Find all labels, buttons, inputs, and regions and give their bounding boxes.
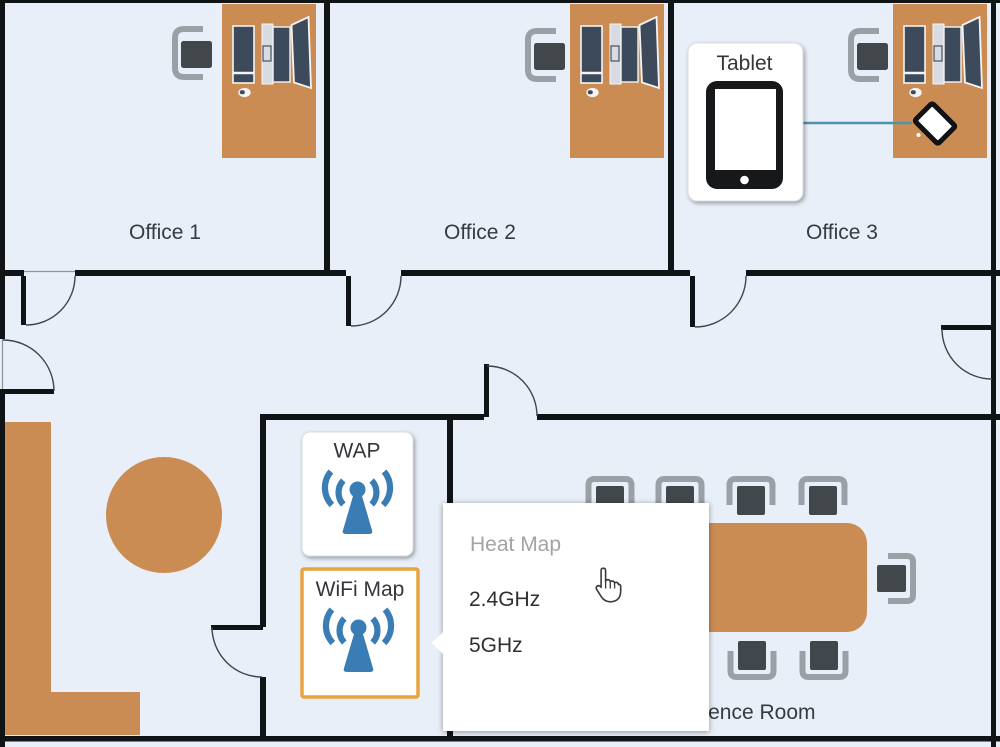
svg-text:Office 3: Office 3 [806,221,878,244]
svg-text:5GHz: 5GHz [469,634,523,657]
svg-text:Tablet: Tablet [716,52,772,75]
svg-text:WiFi Map: WiFi Map [316,578,405,601]
svg-text:Heat Map: Heat Map [470,533,561,556]
svg-text:Office 1: Office 1 [129,221,201,244]
svg-text:WAP: WAP [333,440,380,463]
svg-text:Office 2: Office 2 [444,221,516,244]
svg-text:2.4GHz: 2.4GHz [469,588,540,611]
